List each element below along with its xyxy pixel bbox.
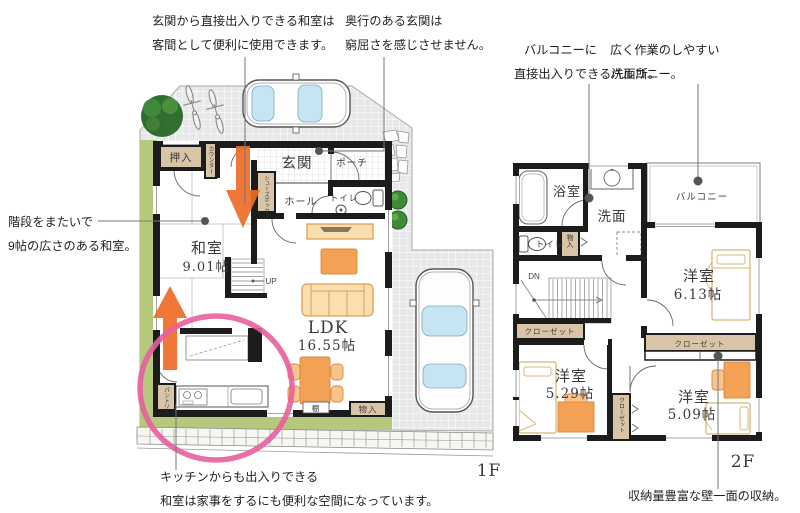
car-icon-parking [410,269,479,412]
floor1-plan: 押入 カウンター シューズボックス パントリー 棚 物入 玄関 ポーチ ホール … [153,141,392,417]
balcony-label: バルコニー [676,192,728,203]
note-stairs-washitsu-1: 階段をまたいで [8,214,93,229]
monoire-1f-label: 物入 [358,405,377,416]
sofa [302,284,373,316]
note-genkan-depth-1: 奥行のある玄関は [345,13,443,28]
washbasin-icon [591,167,633,189]
kitchen-island [186,336,248,360]
hall-label: ホール [285,196,318,208]
room2-size-label: 5.29帖 [546,386,595,402]
room2-label: 洋室 [555,367,587,385]
retaining-wall [137,427,493,456]
closet-a-label: クローゼット [525,326,576,336]
washing-machine-icon [617,232,641,257]
note-kitchen-washitsu-2: 和室は家事をするにも便利な空間になっています。 [160,493,438,508]
note-genkan-washitsu-1: 玄関から直接出入りできる和室は [152,13,335,28]
note-balcony-wide-2: バルコニー。 [610,67,683,81]
bath-label: 浴室 [553,184,581,200]
center-table [321,249,357,274]
dining-table [300,357,330,404]
note-wall-storage: 収納量豊富な壁一面の収納。 [628,488,786,503]
room3-label: 洋室 [678,388,710,406]
washroom-label: 洗面 [598,209,627,225]
closet-b-label: クローゼット [675,339,726,349]
stairs-1f [231,259,264,296]
porch-label: ポーチ [336,158,368,169]
closet-c-label: クローゼット [618,397,625,433]
dn-label: DN [528,272,540,281]
note-stairs-washitsu-2: 9帖の広さのある和室。 [8,238,137,253]
floor2-plan: 物入 クローゼット クローゼット クローゼット 浴室 洗面 バルコニー トイレ … [513,163,762,441]
room1-label: 洋室 [683,267,715,285]
car-icon-top [243,74,350,133]
floor2-label: 2F [731,452,756,472]
ldk-size-label: 16.55帖 [298,338,356,354]
washitsu-label: 和室 [191,239,223,257]
note-genkan-depth-2: 窮屈さを感じさせません。 [345,37,491,52]
note-balcony-washroom-1: バルコニーに [524,43,597,57]
shelf-label: 棚 [312,403,321,413]
note-balcony-wide-1: 広く作業のしやすい [610,43,720,57]
washitsu-size-label: 9.01帖 [183,260,230,275]
up-label: UP [265,277,276,286]
oshiire-label: 押入 [170,151,193,164]
note-genkan-washitsu-2: 客間として便利に使用できます。 [152,37,333,52]
room1-size-label: 6.13帖 [674,287,723,303]
pantry-label: パントリー [163,387,170,415]
room3-size-label: 5.09帖 [668,407,717,423]
genkan-label: 玄関 [282,155,313,172]
floorplan-figure: 押入 カウンター シューズボックス パントリー 棚 物入 玄関 ポーチ ホール … [0,0,800,513]
floor1-label: 1F [477,461,502,481]
monoire-2f-label: 物入 [566,233,574,248]
note-kitchen-washitsu-1: キッチンからも出入りできる [160,470,318,484]
floorplan-svg: 押入 カウンター シューズボックス パントリー 棚 物入 玄関 ポーチ ホール … [0,0,800,513]
toilet-2f-label: トイレ [536,240,565,250]
counter-label: カウンター [208,146,215,174]
tree [141,95,183,137]
kitchen-sink [231,389,262,404]
tv-icon [320,227,352,232]
bathtub-icon [519,171,547,224]
ldk-label: LDK [308,318,349,338]
toilet-1f-label: トイレ [330,194,359,204]
shoebox-label: シューズボックス [263,175,270,219]
